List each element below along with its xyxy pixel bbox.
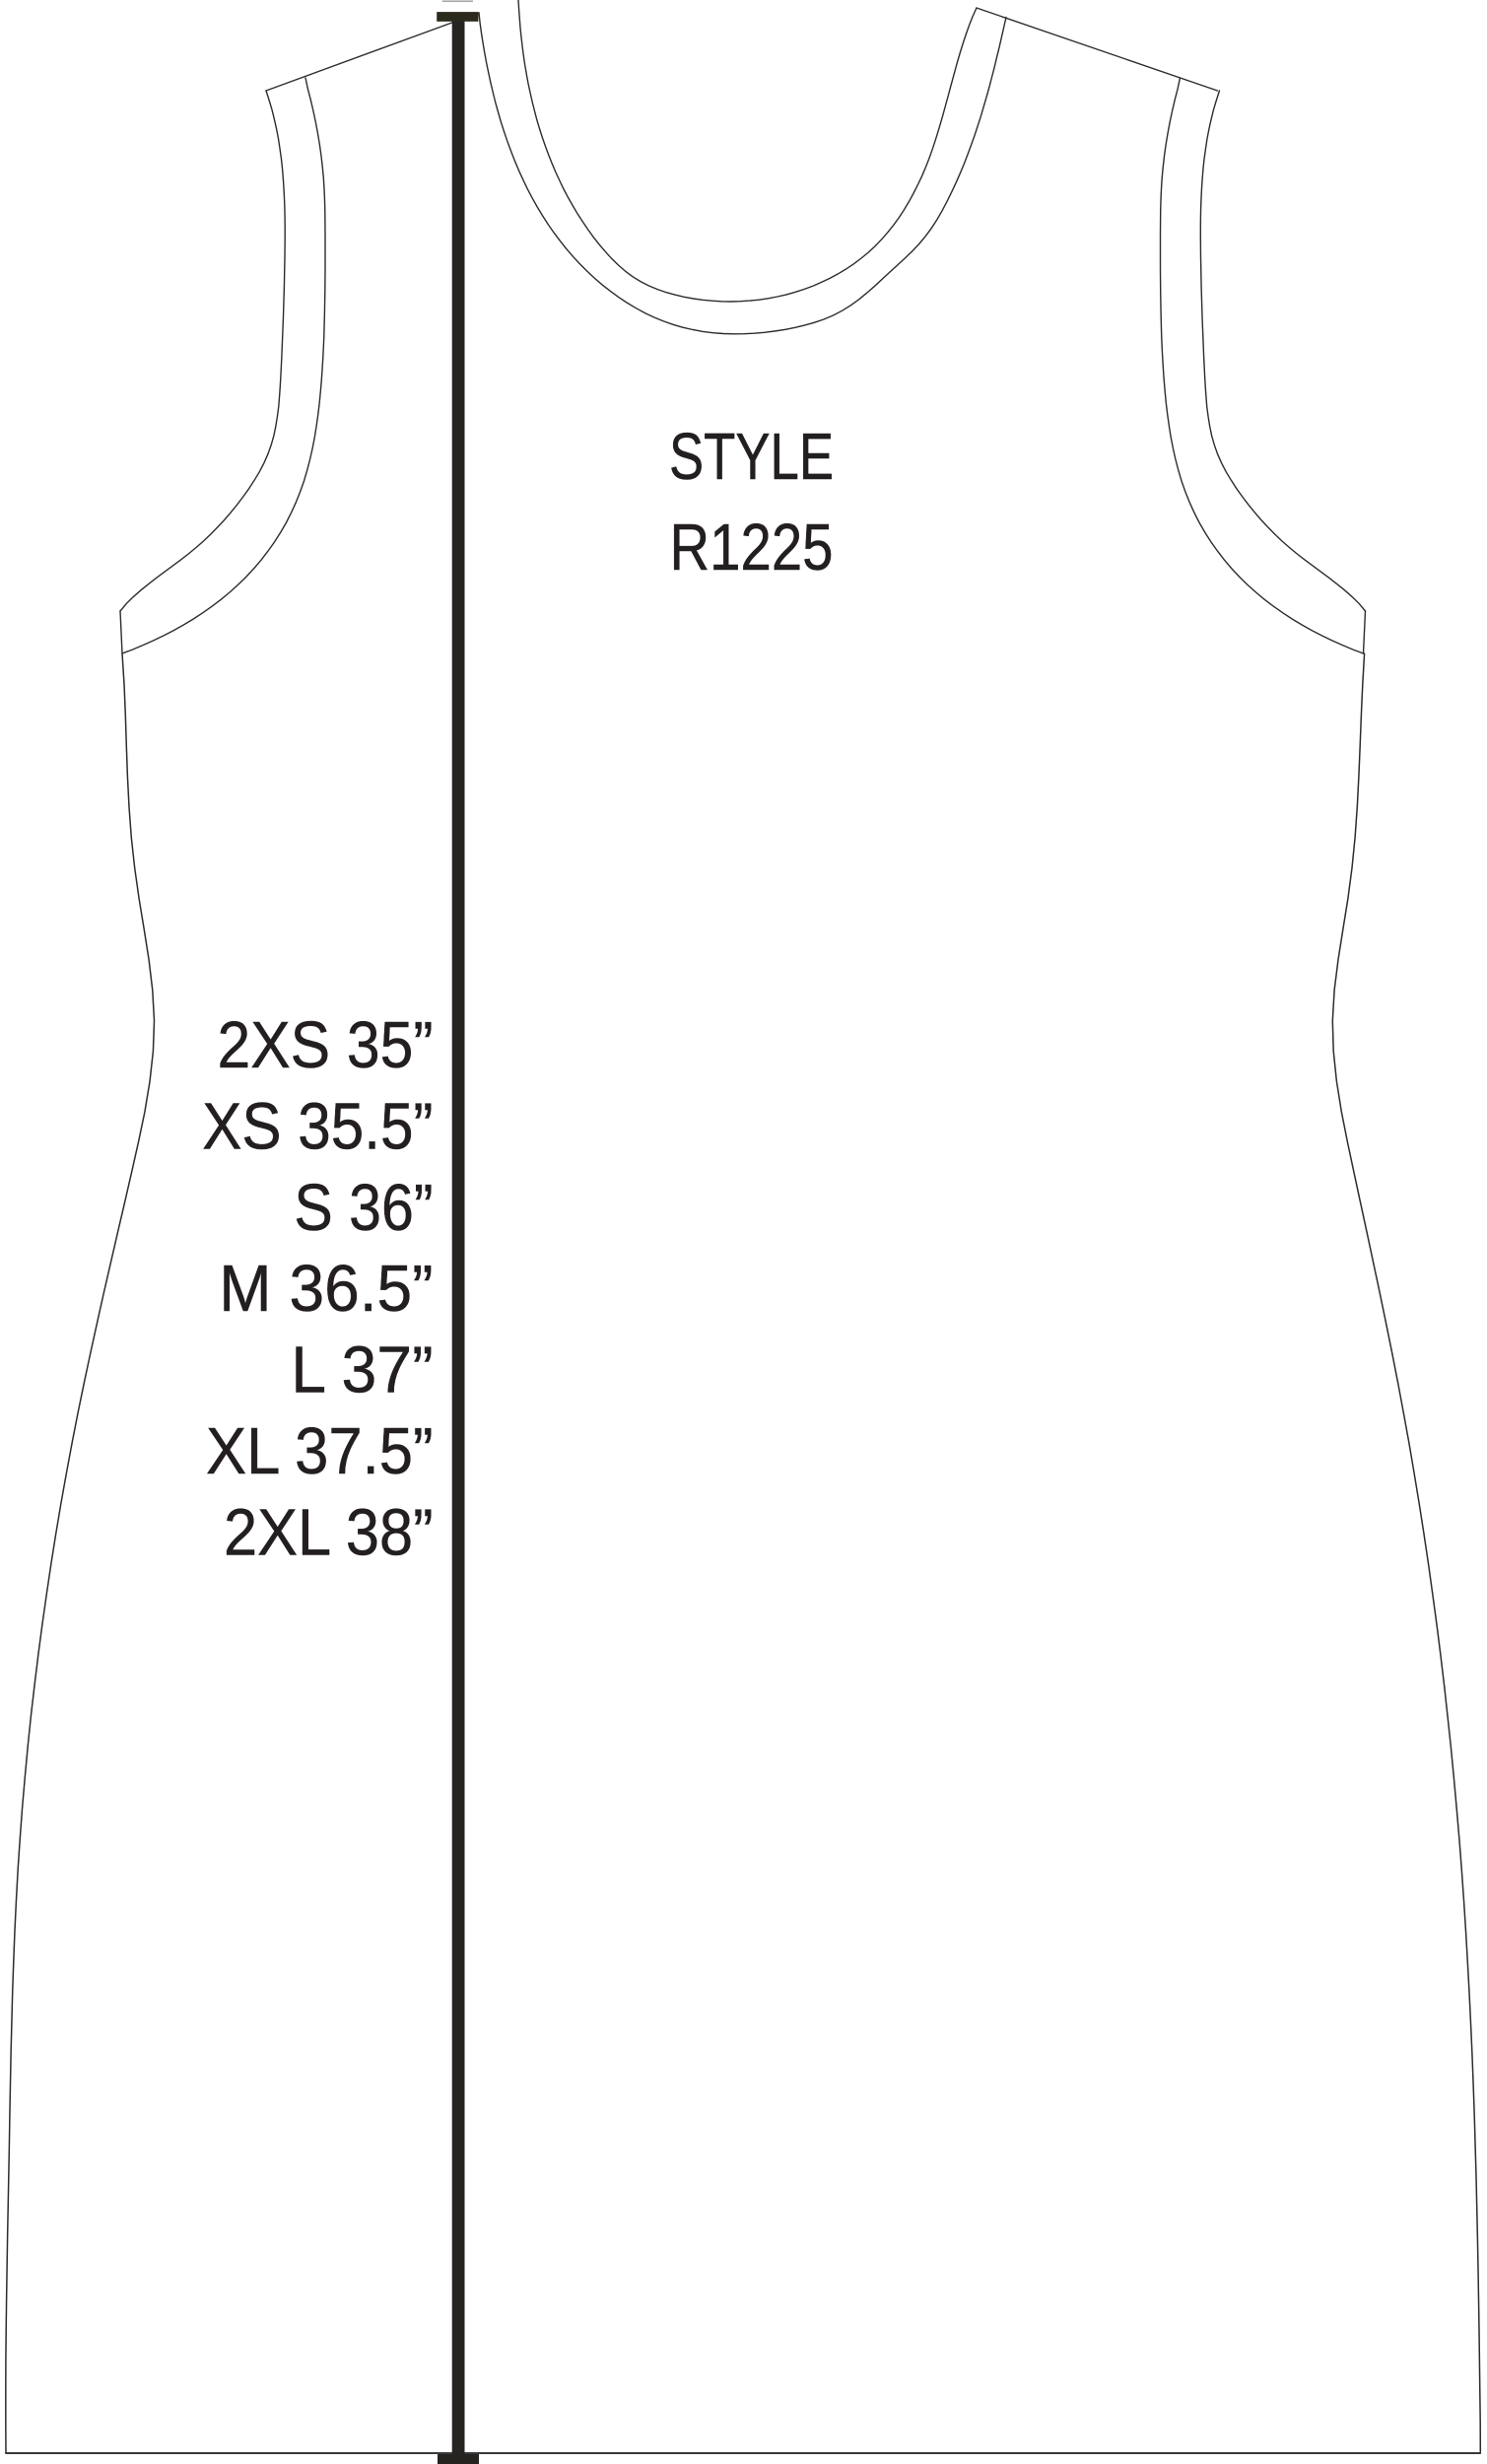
svg-text:2XL 38”: 2XL 38” bbox=[224, 1495, 434, 1569]
svg-text:L 37”: L 37” bbox=[291, 1334, 433, 1407]
svg-text:M 36.5”: M 36.5” bbox=[219, 1252, 433, 1326]
svg-text:S 36”: S 36” bbox=[294, 1171, 433, 1245]
svg-text:XS 35.5”: XS 35.5” bbox=[202, 1089, 433, 1163]
svg-text:R1225: R1225 bbox=[670, 511, 834, 584]
svg-text:STYLE: STYLE bbox=[669, 420, 834, 494]
svg-text:2XS 35”: 2XS 35” bbox=[218, 1008, 434, 1082]
svg-text:XL 37.5”: XL 37.5” bbox=[206, 1414, 434, 1488]
